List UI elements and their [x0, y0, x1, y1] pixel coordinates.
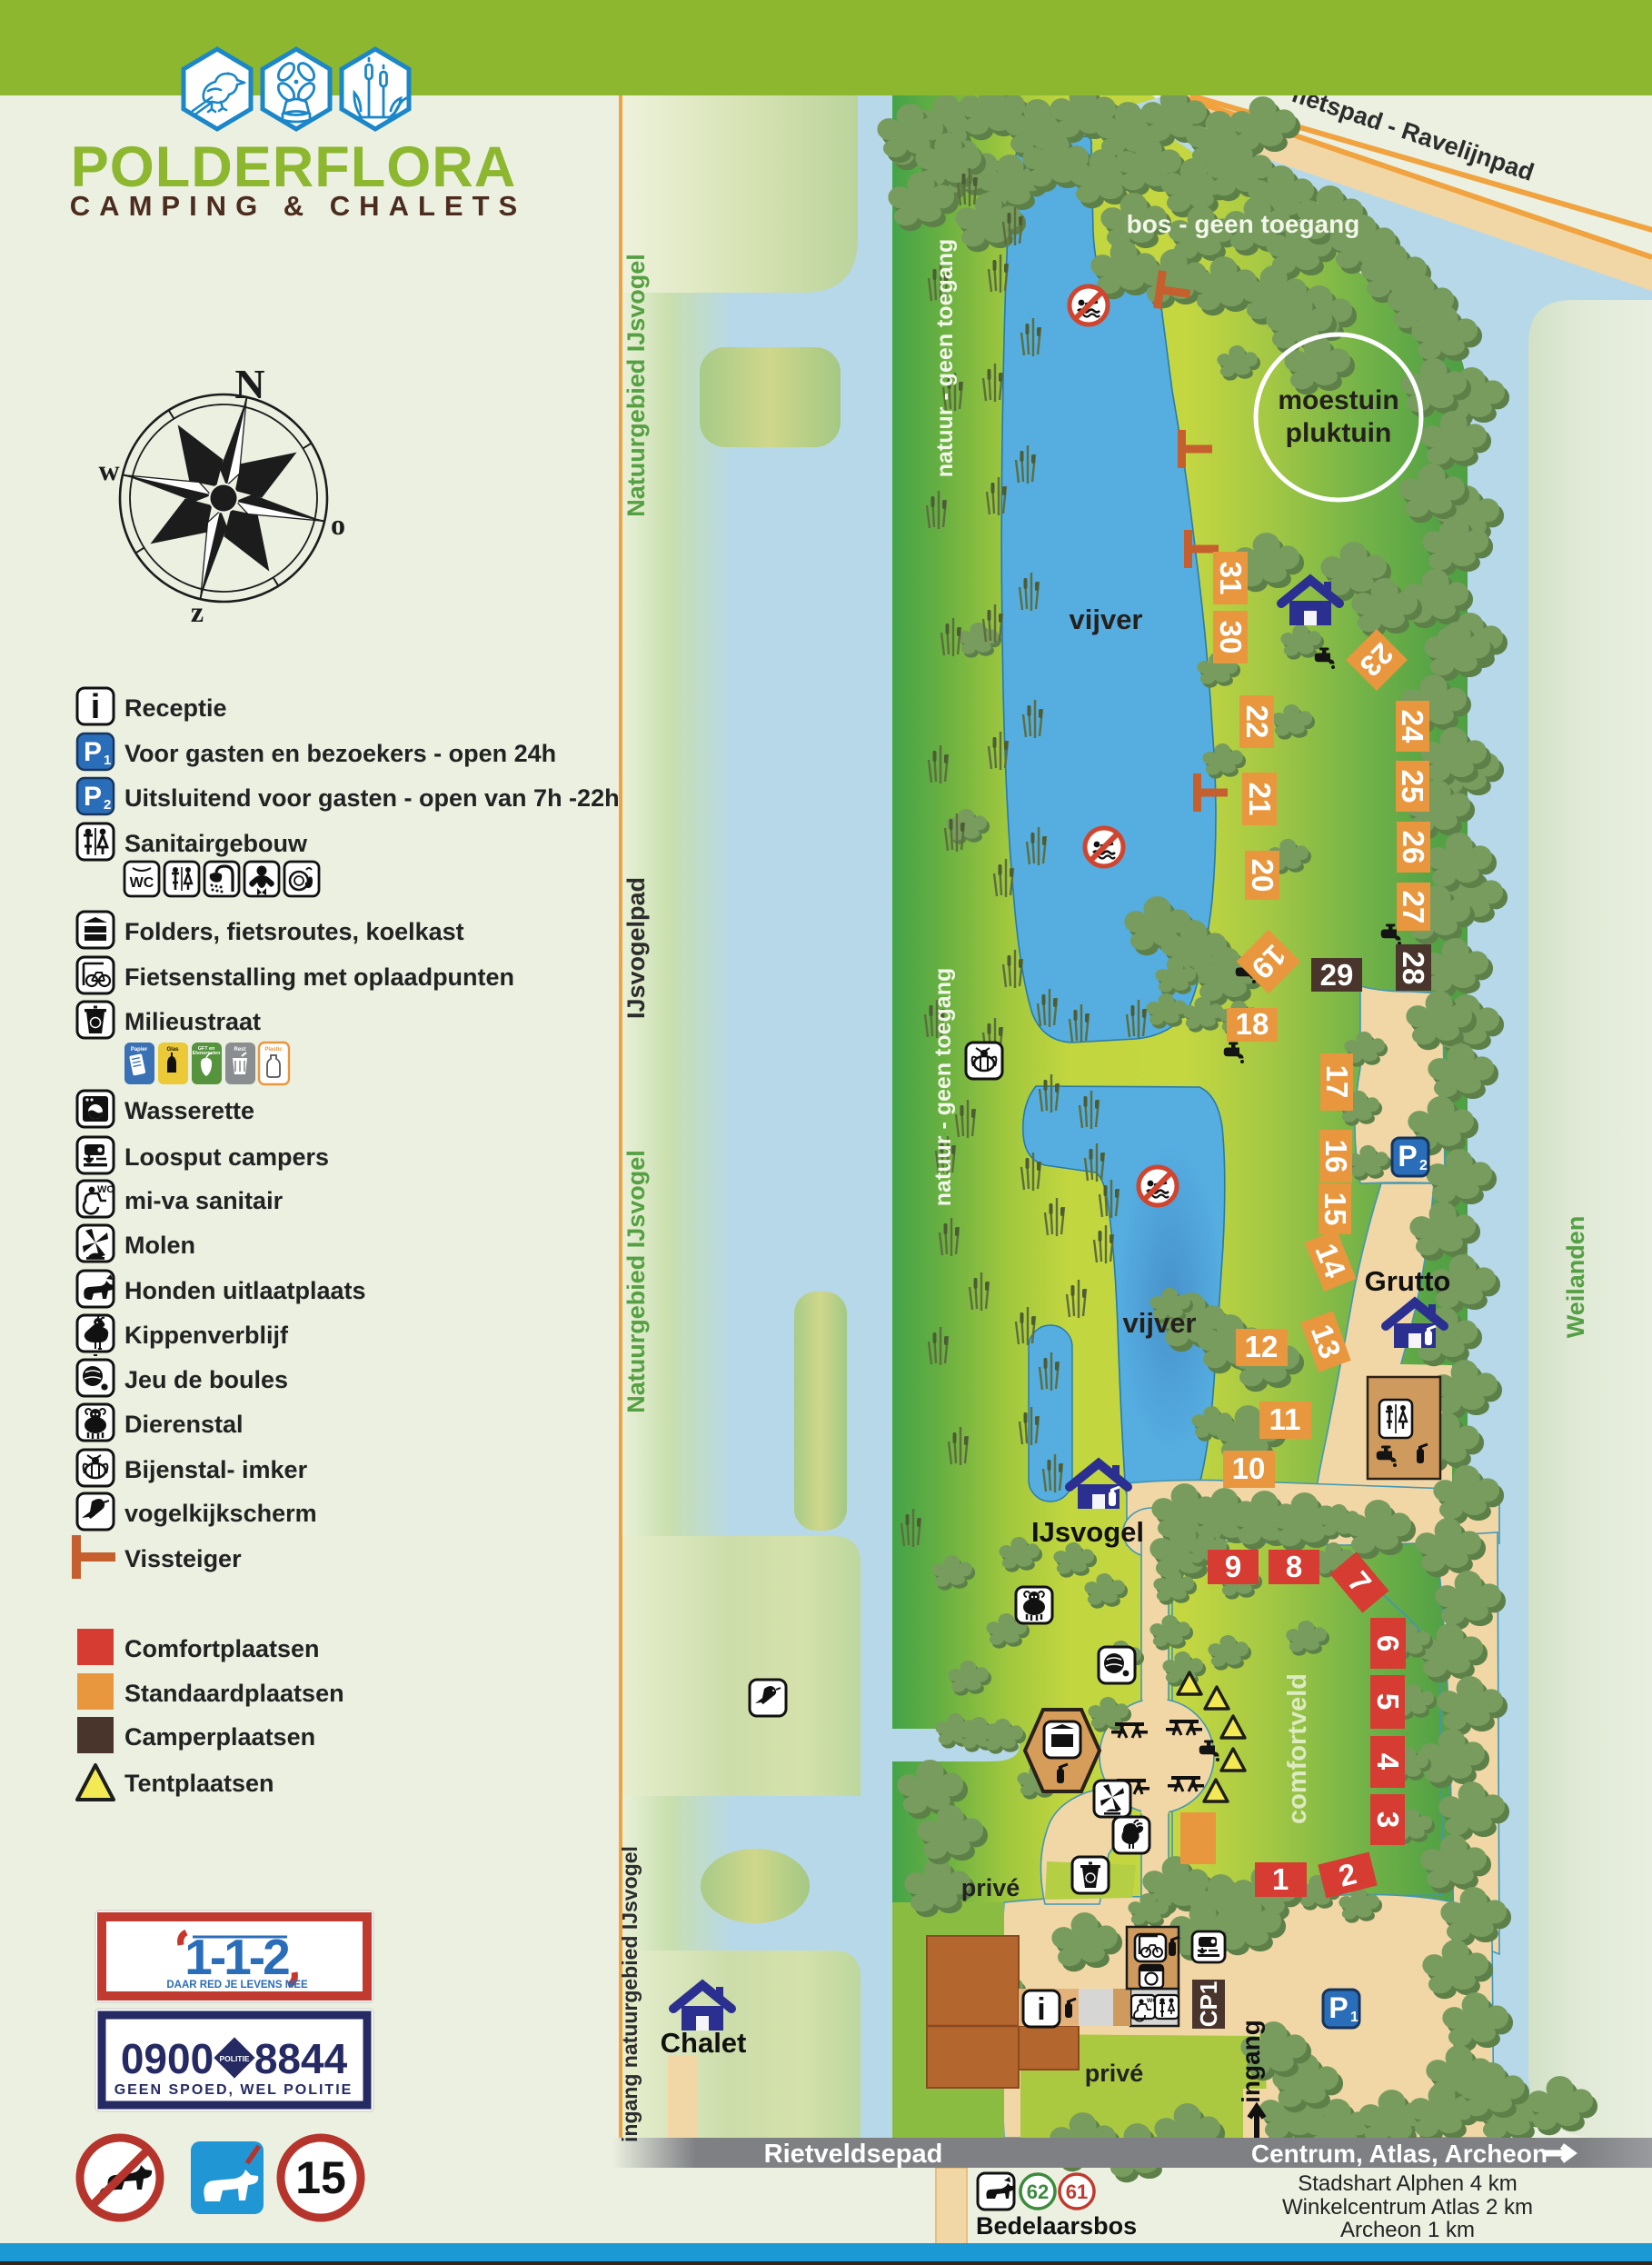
- svg-text:Chalet: Chalet: [661, 2027, 747, 2059]
- svg-text:Uitsluitend voor gasten - open: Uitsluitend voor gasten - open van 7h -2…: [124, 784, 620, 812]
- svg-text:Etensresten: Etensresten: [193, 1051, 221, 1056]
- svg-text:ingang natuurgebied IJsvogel: ingang natuurgebied IJsvogel: [618, 1846, 642, 2142]
- svg-text:Bedelaarsbos: Bedelaarsbos: [976, 2212, 1137, 2240]
- svg-text:Papier: Papier: [131, 1047, 148, 1053]
- svg-text:i: i: [91, 688, 101, 726]
- svg-text:Kippenverblijf: Kippenverblijf: [124, 1322, 289, 1349]
- svg-text:15: 15: [295, 2152, 346, 2203]
- svg-text:4: 4: [1371, 1753, 1405, 1771]
- svg-text:POLITIE: POLITIE: [219, 2054, 249, 2063]
- svg-text:natuur - geen toegang: natuur - geen toegang: [930, 968, 956, 1207]
- svg-text:vogelkijkscherm: vogelkijkscherm: [124, 1500, 317, 1527]
- svg-text:P: P: [84, 737, 102, 767]
- svg-text:Stadshart Alphen 4 km: Stadshart Alphen 4 km: [1298, 2171, 1517, 2196]
- svg-text:z: z: [191, 595, 204, 628]
- svg-text:privé: privé: [961, 1874, 1020, 1901]
- svg-text:61: 61: [1066, 2180, 1088, 2203]
- svg-text:comfortveld: comfortveld: [1283, 1673, 1312, 1824]
- svg-text:o: o: [331, 508, 345, 541]
- svg-text:Sanitairgebouw: Sanitairgebouw: [124, 830, 308, 857]
- svg-text:Jeu de boules: Jeu de boules: [124, 1366, 288, 1393]
- svg-text:P: P: [84, 782, 102, 812]
- svg-text:10: 10: [1232, 1452, 1266, 1485]
- svg-text:Standaardplaatsen: Standaardplaatsen: [124, 1680, 344, 1707]
- svg-text:IJsvogelpad: IJsvogelpad: [622, 877, 650, 1019]
- svg-text:Loosput campers: Loosput campers: [124, 1143, 329, 1171]
- svg-text:Voor gasten en bezoekers - ope: Voor gasten en bezoekers - open 24h: [124, 740, 556, 767]
- svg-text:privé: privé: [1085, 2060, 1144, 2087]
- svg-text:Folders, fietsroutes, koelkast: Folders, fietsroutes, koelkast: [124, 918, 464, 945]
- svg-text:Plastic: Plastic: [264, 1047, 283, 1053]
- svg-text:moestuin: moestuin: [1278, 385, 1398, 415]
- svg-text:11: 11: [1269, 1402, 1301, 1436]
- svg-text:bos - geen toegang: bos - geen toegang: [1127, 210, 1360, 238]
- svg-text:mi-va sanitair: mi-va sanitair: [124, 1187, 284, 1214]
- svg-text:Archeon 1 km: Archeon 1 km: [1340, 2218, 1475, 2242]
- svg-text:2: 2: [1419, 1158, 1428, 1173]
- svg-text:Rest: Rest: [234, 1047, 245, 1053]
- svg-text:28: 28: [1397, 952, 1430, 985]
- svg-text:20: 20: [1246, 859, 1279, 893]
- svg-text:CAMPING & CHALETS: CAMPING & CHALETS: [70, 190, 526, 222]
- svg-text:Wasserette: Wasserette: [124, 1097, 254, 1124]
- svg-text:N: N: [234, 361, 264, 407]
- svg-text:Winkelcentrum Atlas 2 km: Winkelcentrum Atlas 2 km: [1282, 2195, 1533, 2220]
- svg-text:Dierenstal: Dierenstal: [124, 1411, 244, 1438]
- svg-text:DAAR RED JE LEVENS MEE: DAAR RED JE LEVENS MEE: [166, 1980, 308, 1991]
- svg-text:30: 30: [1214, 621, 1248, 654]
- svg-text:21: 21: [1243, 783, 1277, 816]
- svg-text:P: P: [1329, 1991, 1348, 2024]
- svg-text:w: w: [98, 454, 119, 486]
- svg-text:Tentplaatsen: Tentplaatsen: [124, 1770, 274, 1797]
- svg-text:Centrum, Atlas, Archeon: Centrum, Atlas, Archeon: [1251, 2140, 1548, 2168]
- svg-text:18: 18: [1236, 1007, 1269, 1041]
- svg-text:CP1: CP1: [1195, 1981, 1222, 2028]
- svg-text:Milieustraat: Milieustraat: [124, 1008, 261, 1035]
- svg-text:Rietveldsepad: Rietveldsepad: [764, 2140, 943, 2169]
- svg-text:i: i: [1037, 1992, 1045, 2027]
- svg-text:Grutto: Grutto: [1365, 1265, 1451, 1297]
- svg-text:vijver: vijver: [1069, 604, 1142, 635]
- svg-text:1: 1: [1272, 1862, 1289, 1896]
- svg-text:12: 12: [1245, 1330, 1279, 1363]
- svg-text:31: 31: [1214, 562, 1248, 595]
- svg-text:Molen: Molen: [124, 1232, 195, 1259]
- svg-text:5: 5: [1371, 1693, 1405, 1710]
- svg-text:8: 8: [1286, 1550, 1302, 1583]
- svg-text:26: 26: [1397, 831, 1430, 864]
- svg-text:natuur - geen toegang: natuur - geen toegang: [932, 239, 958, 478]
- svg-text:8844: 8844: [254, 2035, 348, 2082]
- svg-text:3: 3: [1371, 1811, 1405, 1828]
- svg-text:29: 29: [1320, 958, 1354, 992]
- svg-text:Weilanden: Weilanden: [1562, 1216, 1589, 1339]
- svg-text:IJsvogel: IJsvogel: [1031, 1516, 1144, 1548]
- svg-text:P: P: [1398, 1140, 1417, 1172]
- svg-text:Camperplaatsen: Camperplaatsen: [124, 1723, 315, 1751]
- svg-text:vijver: vijver: [1122, 1307, 1196, 1339]
- svg-text:Receptie: Receptie: [124, 694, 227, 722]
- svg-text:Comfortplaatsen: Comfortplaatsen: [124, 1635, 320, 1662]
- svg-text:Glas: Glas: [166, 1047, 179, 1053]
- svg-text:27: 27: [1397, 891, 1430, 924]
- svg-text:16: 16: [1319, 1140, 1353, 1173]
- svg-text:WC: WC: [130, 875, 154, 891]
- svg-text:1: 1: [104, 753, 111, 768]
- svg-text:pluktuin: pluktuin: [1286, 418, 1392, 448]
- svg-text:Honden uitlaatplaats: Honden uitlaatplaats: [124, 1277, 366, 1304]
- svg-text:Vissteiger: Vissteiger: [124, 1545, 242, 1572]
- svg-text:9: 9: [1225, 1550, 1241, 1583]
- svg-text:Bijenstal- imker: Bijenstal- imker: [124, 1456, 308, 1483]
- svg-text:Natuurgebied IJsvogel: Natuurgebied IJsvogel: [622, 254, 650, 517]
- svg-text:Natuurgebied IJsvogel: Natuurgebied IJsvogel: [622, 1150, 650, 1413]
- svg-text:ingang: ingang: [1237, 2020, 1265, 2103]
- svg-text:2: 2: [104, 797, 111, 813]
- svg-text:22: 22: [1240, 705, 1274, 739]
- svg-text:6: 6: [1371, 1635, 1405, 1651]
- svg-text:62: 62: [1027, 2180, 1049, 2203]
- svg-text:GEEN SPOED, WEL POLITIE: GEEN SPOED, WEL POLITIE: [114, 2082, 353, 2098]
- svg-text:0900: 0900: [121, 2035, 214, 2082]
- svg-text:WC: WC: [97, 1184, 114, 1195]
- svg-text:24: 24: [1396, 710, 1429, 743]
- svg-text:17: 17: [1320, 1065, 1354, 1099]
- svg-text:1: 1: [1350, 2010, 1358, 2025]
- svg-text:Fietsenstalling met oplaadpunt: Fietsenstalling met oplaadpunten: [124, 963, 514, 991]
- svg-text:15: 15: [1319, 1192, 1352, 1226]
- svg-text:25: 25: [1396, 770, 1429, 803]
